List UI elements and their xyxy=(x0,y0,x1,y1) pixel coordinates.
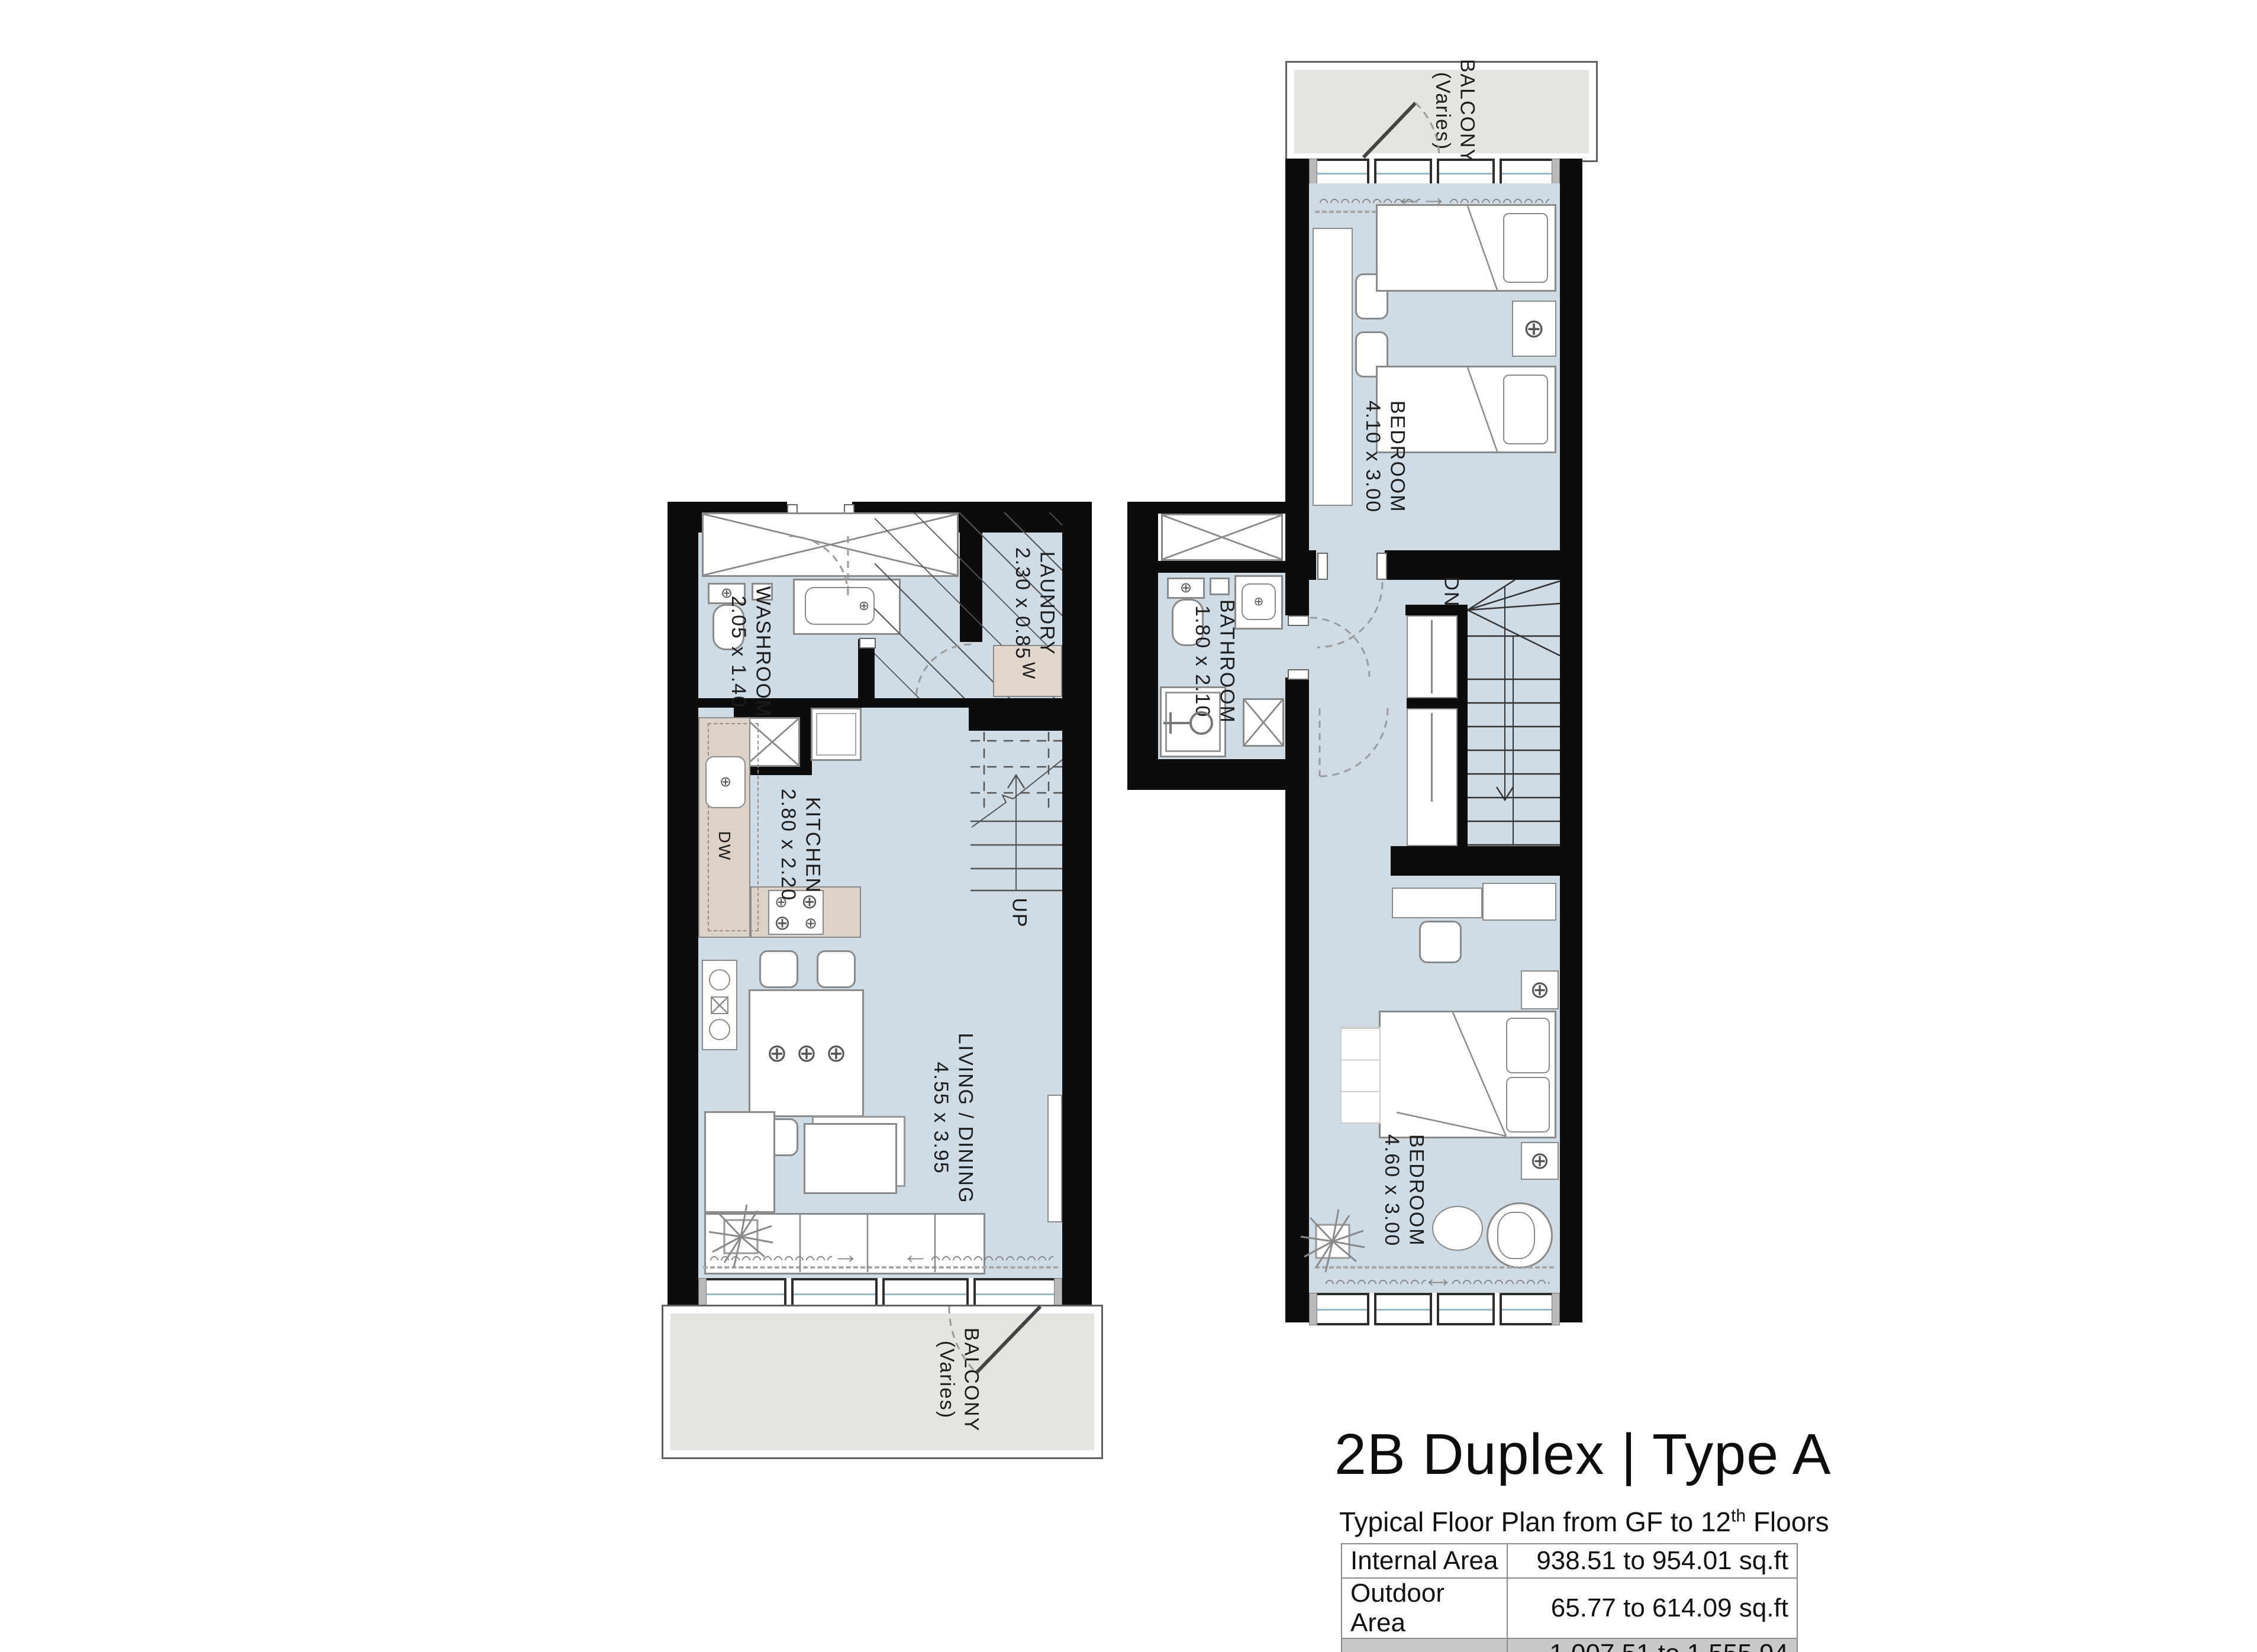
uf-ottoman xyxy=(1432,1206,1483,1251)
uf-window-mullion xyxy=(1492,1293,1502,1325)
gf-balcony-label: BALCONY (Varies) xyxy=(934,1328,984,1432)
gf-washer-label: W xyxy=(1017,662,1039,680)
uf-wing-wall-left xyxy=(1127,502,1158,790)
gf-burner-icon: ⊕ xyxy=(774,913,791,933)
area-value: 65.77 to 614.09 sq.ft xyxy=(1507,1578,1797,1638)
uf-stairs-label: DN xyxy=(1439,576,1463,607)
area-value: 1,007.51 to 1,555.94 sq.ft xyxy=(1507,1638,1797,1652)
gf-lamp xyxy=(709,969,730,990)
gf-kitchen-upper-cabinets xyxy=(708,723,759,931)
gf-wall-stairs-top xyxy=(969,698,1092,731)
table-row: Internal Area 938.51 to 954.01 sq.ft xyxy=(1342,1544,1797,1578)
uf-window-mullion xyxy=(1367,1293,1376,1325)
area-value: 938.51 to 954.01 sq.ft xyxy=(1507,1544,1797,1578)
uf-wall-right xyxy=(1560,159,1582,1322)
uf-wall-under-stairs xyxy=(1391,846,1560,876)
uf-nightstand-light-icon: ⊕ xyxy=(1530,1149,1550,1173)
uf-tp-holder xyxy=(1210,577,1230,595)
gf-washroom-faucet-icon: ⊕ xyxy=(859,599,869,612)
drawing-overlay xyxy=(0,0,2257,1652)
uf-double-bed-pillow xyxy=(1506,1018,1550,1073)
uf-wall-bed1-stub xyxy=(1309,550,1316,580)
gf-washroom-label: WASHROOM 2.05 x 1.40 xyxy=(726,586,775,718)
gf-side-unit-box xyxy=(711,996,728,1014)
table-row: Outdoor Area 65.77 to 614.09 sq.ft xyxy=(1342,1578,1797,1638)
gf-burner-icon: ⊕ xyxy=(804,915,817,931)
gf-sofa-chaise xyxy=(704,1111,775,1213)
uf-wall-under-closet xyxy=(1158,561,1285,573)
uf-wall-left-a xyxy=(1285,159,1309,615)
uf-nightstand-light-icon: ⊕ xyxy=(1530,978,1550,1002)
uf-twin-bed-2-pillow xyxy=(1503,375,1548,444)
gf-wall-over-fridge xyxy=(812,698,864,708)
uf-window-cap xyxy=(1309,1293,1317,1325)
gf-laundry-jamb-bottom xyxy=(859,638,876,648)
uf-bed2-desk xyxy=(1392,888,1482,918)
table-row-total: Total Area 1,007.51 to 1,555.94 sq.ft xyxy=(1342,1638,1797,1652)
uf-wardrobe-rail xyxy=(1431,713,1433,802)
gf-curtain-arrow-right: → xyxy=(832,1240,859,1267)
uf-bed1-door-jamb xyxy=(1376,553,1387,580)
uf-nightstand-light-icon: ⊕ xyxy=(1523,316,1545,342)
uf-bed2-curtain-right xyxy=(1451,1273,1549,1284)
gf-dining-chair xyxy=(759,950,798,988)
uf-wall-bed1-bottom xyxy=(1385,550,1560,580)
uf-bath-closet xyxy=(1243,698,1284,747)
uf-bed2-curtain-arrow-left: ← xyxy=(1423,1264,1450,1291)
gf-dishwasher-label: DW xyxy=(714,831,734,862)
gf-coffee-table xyxy=(804,1123,897,1194)
uf-bedroom2-label: BEDROOM 4.60 x 3.00 xyxy=(1379,1134,1429,1247)
uf-wardrobe-rail xyxy=(1431,620,1433,693)
area-label: Internal Area xyxy=(1342,1544,1507,1578)
uf-bottom-window-wall xyxy=(1309,1293,1560,1325)
gf-wall-left xyxy=(668,502,698,1305)
uf-bedroom1-label: BEDROOM 4.10 x 3.00 xyxy=(1360,401,1410,513)
gf-balcony xyxy=(662,1305,1103,1459)
gf-wall-right xyxy=(1062,502,1092,1305)
gf-stairs-label: UP xyxy=(1007,898,1031,928)
uf-wing-wall-bottom xyxy=(1127,759,1309,790)
uf-window-mullion xyxy=(1430,1293,1439,1325)
gf-fridge xyxy=(811,708,862,761)
gf-kitchen-faucet-icon: ⊕ xyxy=(720,775,731,789)
gf-dining-burner-icon: ⊕ xyxy=(796,1041,817,1066)
gf-tv-console xyxy=(1047,1095,1062,1222)
floor-plan-sheet: ⊕ ⊕ WASHROOM 2.05 x 1.40 W LAUNDRY 2.30 … xyxy=(0,0,2257,1652)
uf-wall-stair-divider xyxy=(1458,605,1468,855)
gf-dining-burner-icon: ⊕ xyxy=(826,1041,846,1066)
uf-twin-bed-1-pillow xyxy=(1503,213,1548,283)
area-table: Internal Area 938.51 to 954.01 sq.ft Out… xyxy=(1341,1543,1798,1652)
uf-double-bed-pillow xyxy=(1506,1077,1550,1132)
uf-bath-door-jamb xyxy=(1288,669,1309,680)
uf-bed2-desk-return xyxy=(1482,883,1556,921)
uf-window-cap xyxy=(1552,1293,1560,1325)
gf-curtain-arrow-left: ← xyxy=(902,1240,929,1267)
uf-toilet-flush-icon: ⊕ xyxy=(1180,581,1192,595)
gf-lamp xyxy=(709,1019,730,1040)
gf-dining-burner-icon: ⊕ xyxy=(766,1041,787,1066)
gf-curtain-right xyxy=(930,1250,1053,1260)
area-label: Total Area xyxy=(1342,1638,1507,1652)
uf-hall-closet xyxy=(1161,514,1283,561)
uf-bath-faucet-icon: ⊕ xyxy=(1254,596,1264,608)
plan-subtitle: Typical Floor Plan from GF to 12th Floor… xyxy=(1339,1506,1829,1538)
gf-living-label: LIVING / DINING 4.55 x 3.95 xyxy=(928,1033,978,1204)
gf-kitchen-label: KITCHEN 2.80 x 2.20 xyxy=(776,789,825,901)
uf-wardrobe-divider xyxy=(1407,698,1458,708)
gf-dining-chair xyxy=(817,950,856,988)
uf-bed2-curtain-left xyxy=(1324,1273,1426,1284)
gf-laundry-label: LAUNDRY 2.30 x 0.85 xyxy=(1010,547,1059,660)
uf-bed1-curtain-right xyxy=(1449,192,1549,203)
area-label: Outdoor Area xyxy=(1342,1578,1507,1638)
gf-curtain-track xyxy=(703,1266,1058,1269)
uf-bed1-desk xyxy=(1313,228,1353,506)
gf-curtain-left xyxy=(709,1250,832,1260)
uf-bed1-door-jamb xyxy=(1317,553,1328,580)
uf-round-chair-seat xyxy=(1497,1212,1535,1259)
uf-bed2-rug xyxy=(1340,1027,1381,1124)
uf-bathroom-label: BATHROOM 1.80 x 2.10 xyxy=(1190,599,1239,724)
uf-bed2-chair xyxy=(1419,921,1462,963)
plan-title: 2B Duplex | Type A xyxy=(1334,1421,1831,1488)
uf-bath-door-jamb xyxy=(1288,615,1309,626)
uf-balcony-label: BALCONY (Varies) xyxy=(1430,59,1479,164)
